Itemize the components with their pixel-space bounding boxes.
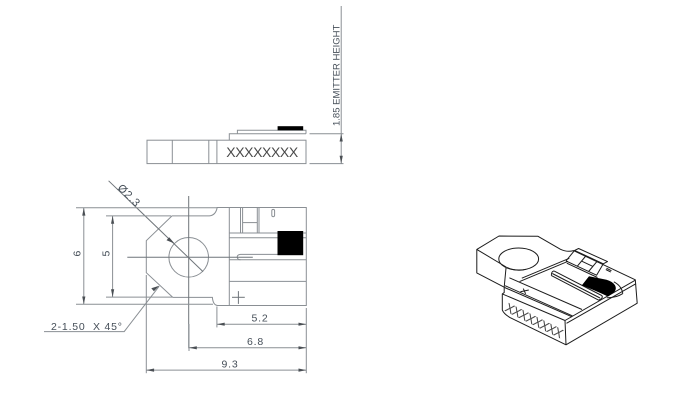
svg-text:5.2: 5.2 bbox=[252, 312, 269, 324]
svg-text:6.8: 6.8 bbox=[247, 336, 264, 348]
svg-text:XXXXXXXX: XXXXXXXX bbox=[503, 300, 566, 342]
svg-text:6: 6 bbox=[72, 250, 84, 257]
svg-text:Ø2.3: Ø2.3 bbox=[115, 182, 143, 210]
svg-text:9.3: 9.3 bbox=[222, 358, 239, 370]
svg-text:XXXXXXXX: XXXXXXXX bbox=[226, 144, 299, 160]
svg-text:5: 5 bbox=[100, 250, 112, 257]
svg-text:2-1.50 X 45°: 2-1.50 X 45° bbox=[51, 321, 123, 333]
svg-text:1.85 EMITTER HEIGHT: 1.85 EMITTER HEIGHT bbox=[332, 24, 343, 126]
